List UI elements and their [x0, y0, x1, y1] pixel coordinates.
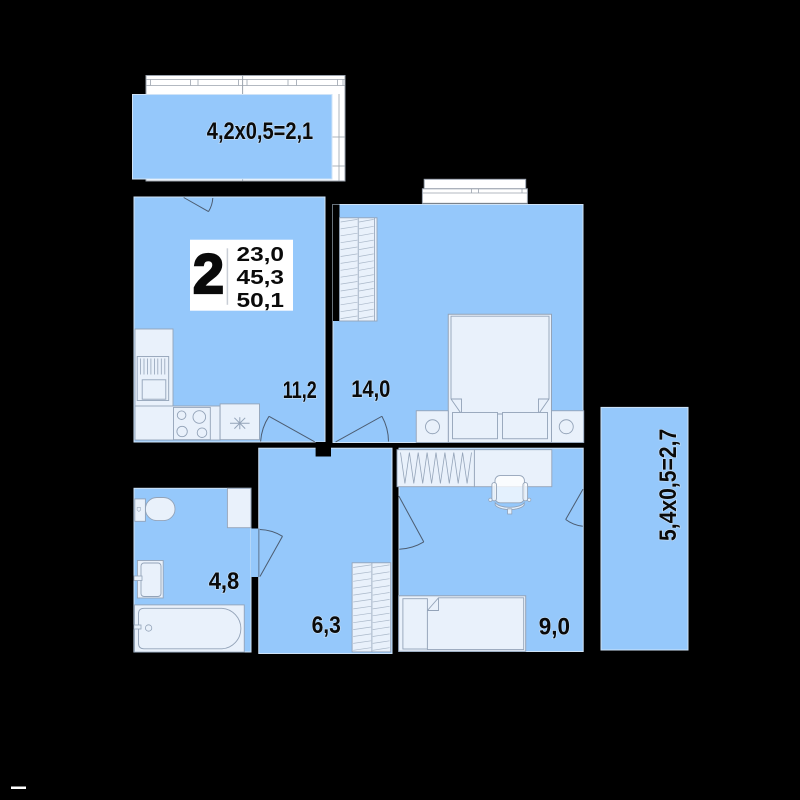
svg-text:9,0: 9,0	[539, 614, 570, 641]
svg-text:6,3: 6,3	[312, 612, 341, 639]
svg-text:4,8: 4,8	[209, 568, 240, 595]
svg-text:45,3: 45,3	[237, 266, 285, 289]
svg-text:14,0: 14,0	[351, 376, 390, 403]
svg-text:2: 2	[193, 242, 224, 305]
svg-text:23,0: 23,0	[237, 243, 285, 266]
svg-text:11,2: 11,2	[283, 377, 317, 404]
svg-text:4,2x0,5=2,1: 4,2x0,5=2,1	[207, 118, 313, 145]
svg-text:5,4x0,5=2,7: 5,4x0,5=2,7	[655, 429, 682, 541]
svg-text:50,1: 50,1	[237, 289, 285, 312]
